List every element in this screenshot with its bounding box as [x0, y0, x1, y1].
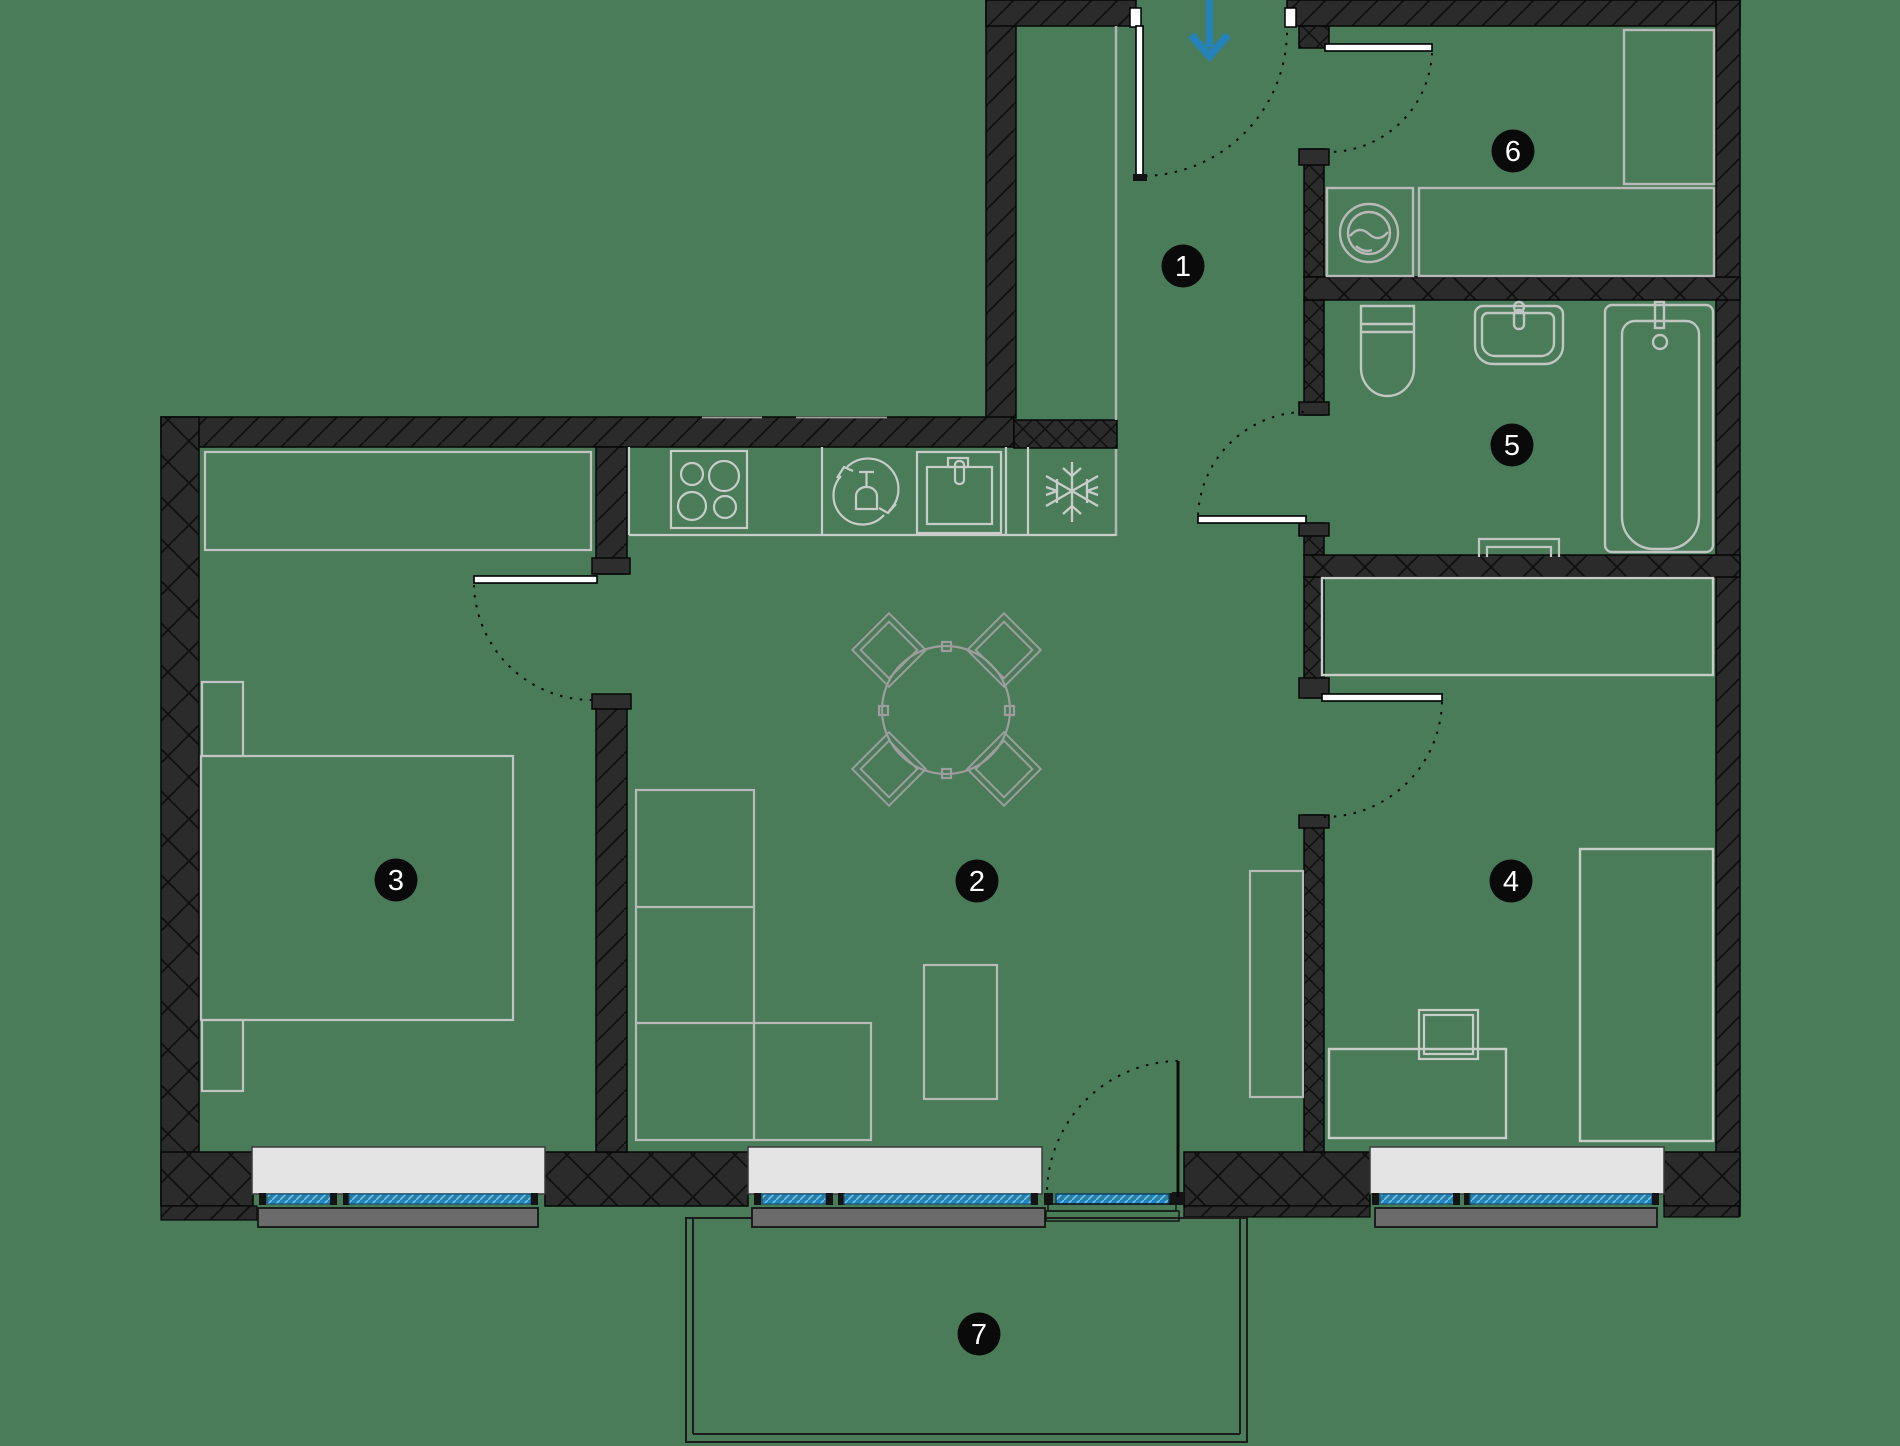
svg-text:6: 6	[1505, 136, 1521, 168]
svg-text:7: 7	[971, 1319, 987, 1351]
svg-text:3: 3	[388, 865, 404, 897]
svg-text:2: 2	[969, 866, 985, 898]
svg-text:5: 5	[1504, 430, 1520, 462]
svg-text:4: 4	[1503, 866, 1519, 898]
svg-text:1: 1	[1175, 251, 1191, 283]
